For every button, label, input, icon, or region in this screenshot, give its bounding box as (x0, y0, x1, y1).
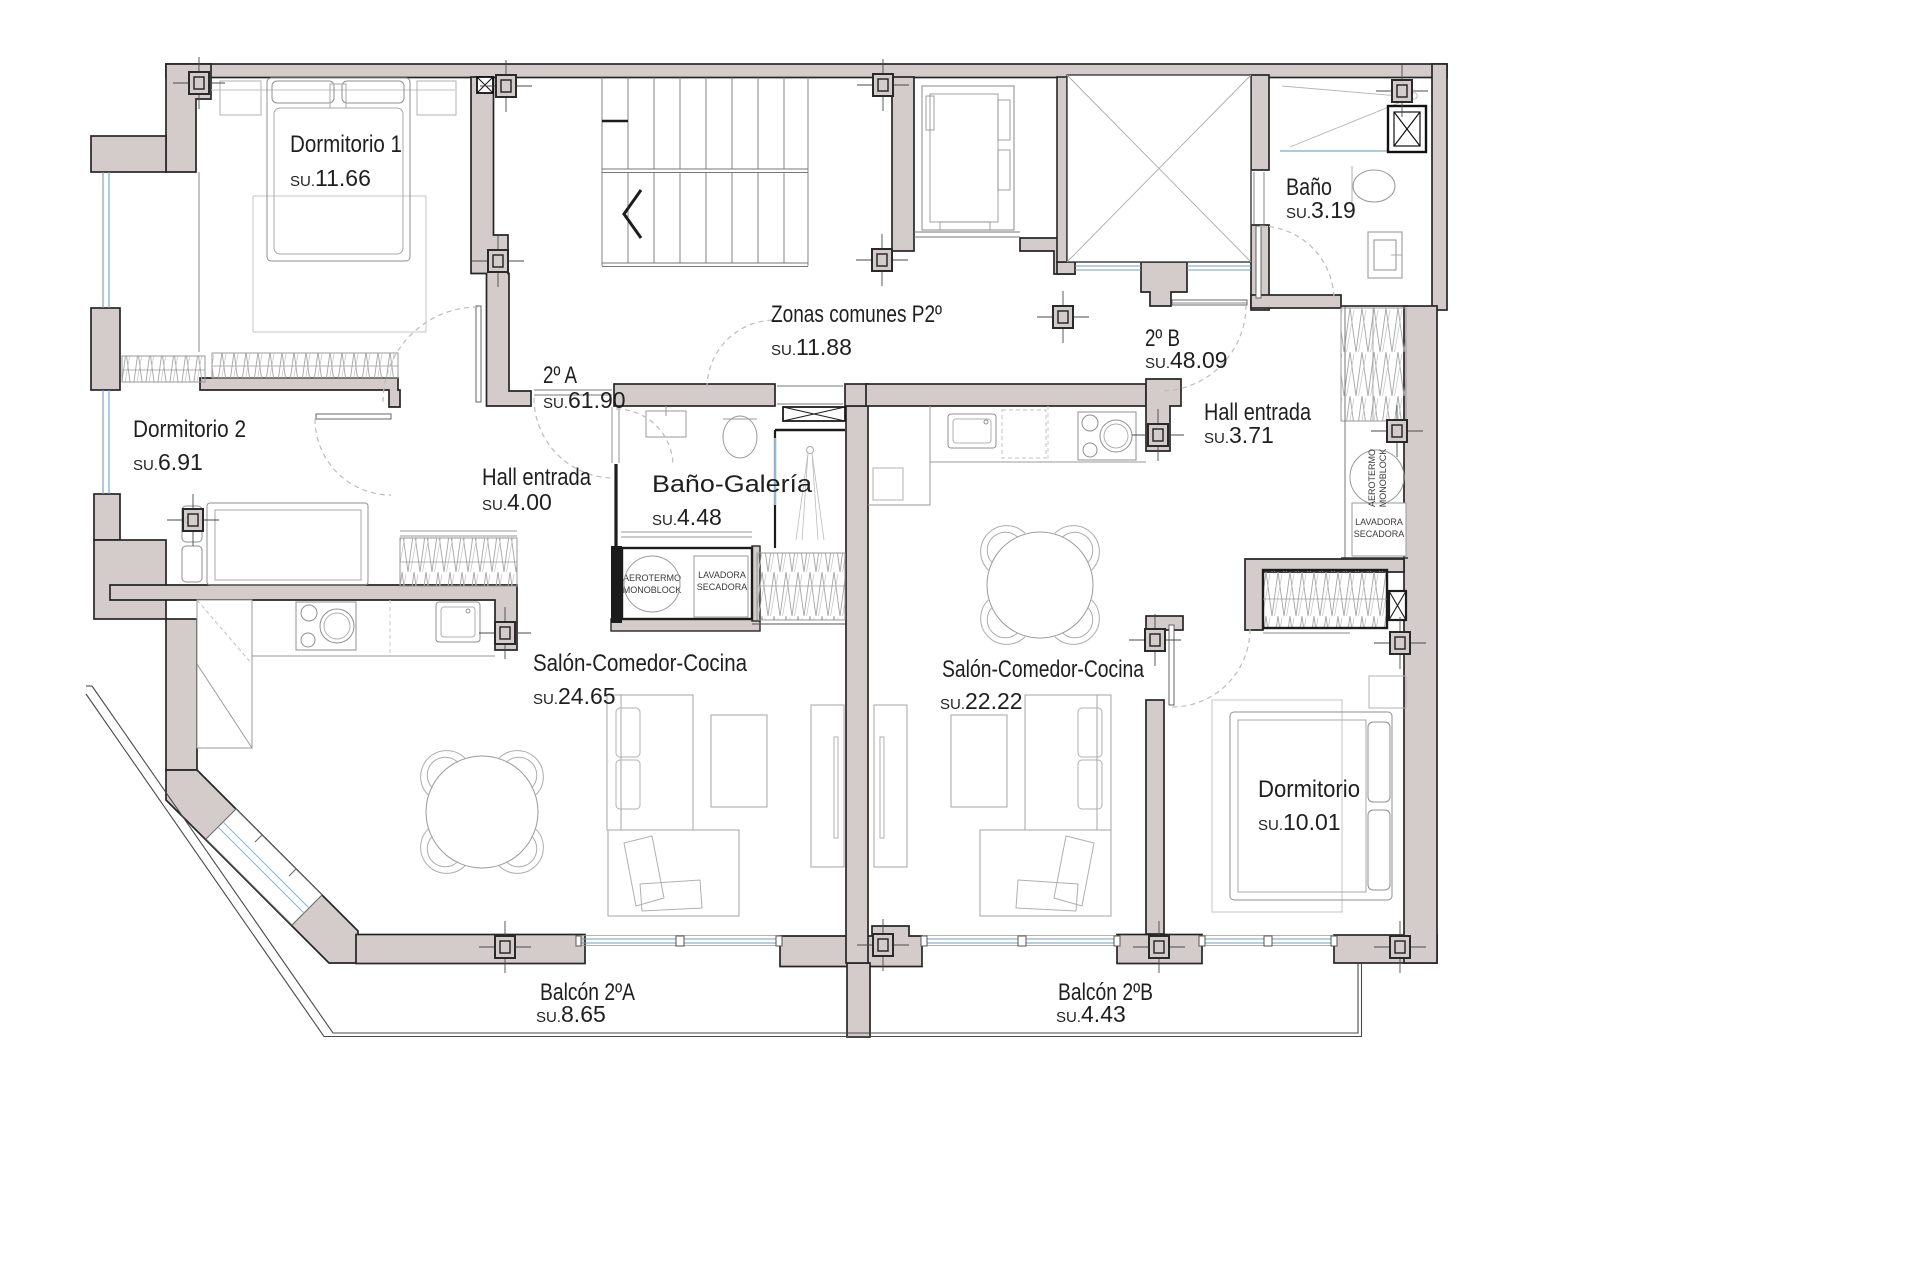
svg-text:SECADORA: SECADORA (1354, 529, 1405, 539)
svg-text:Hall entrada: Hall entrada (482, 464, 592, 491)
svg-text:Dormitorio 1: Dormitorio 1 (290, 131, 402, 158)
svg-text:AEROTERMO: AEROTERMO (623, 573, 681, 583)
svg-text:LAVADORA: LAVADORA (698, 570, 746, 580)
svg-text:MONOBLOCK: MONOBLOCK (623, 585, 682, 595)
svg-text:Dormitorio: Dormitorio (1258, 776, 1360, 803)
svg-text:Salón-Comedor-Cocina: Salón-Comedor-Cocina (942, 656, 1145, 683)
svg-text:Dormitorio 2: Dormitorio 2 (133, 416, 246, 443)
svg-text:AEROTERMO: AEROTERMO (1367, 449, 1377, 507)
svg-text:SECADORA: SECADORA (697, 582, 748, 592)
svg-text:LAVADORA: LAVADORA (1355, 517, 1403, 527)
svg-text:MONOBLOCK: MONOBLOCK (1378, 449, 1388, 508)
svg-text:Baño-Galería: Baño-Galería (652, 471, 813, 498)
svg-text:2º A: 2º A (543, 362, 577, 389)
svg-text:Zonas comunes P2º: Zonas comunes P2º (771, 301, 942, 328)
svg-text:Salón-Comedor-Cocina: Salón-Comedor-Cocina (533, 650, 748, 677)
